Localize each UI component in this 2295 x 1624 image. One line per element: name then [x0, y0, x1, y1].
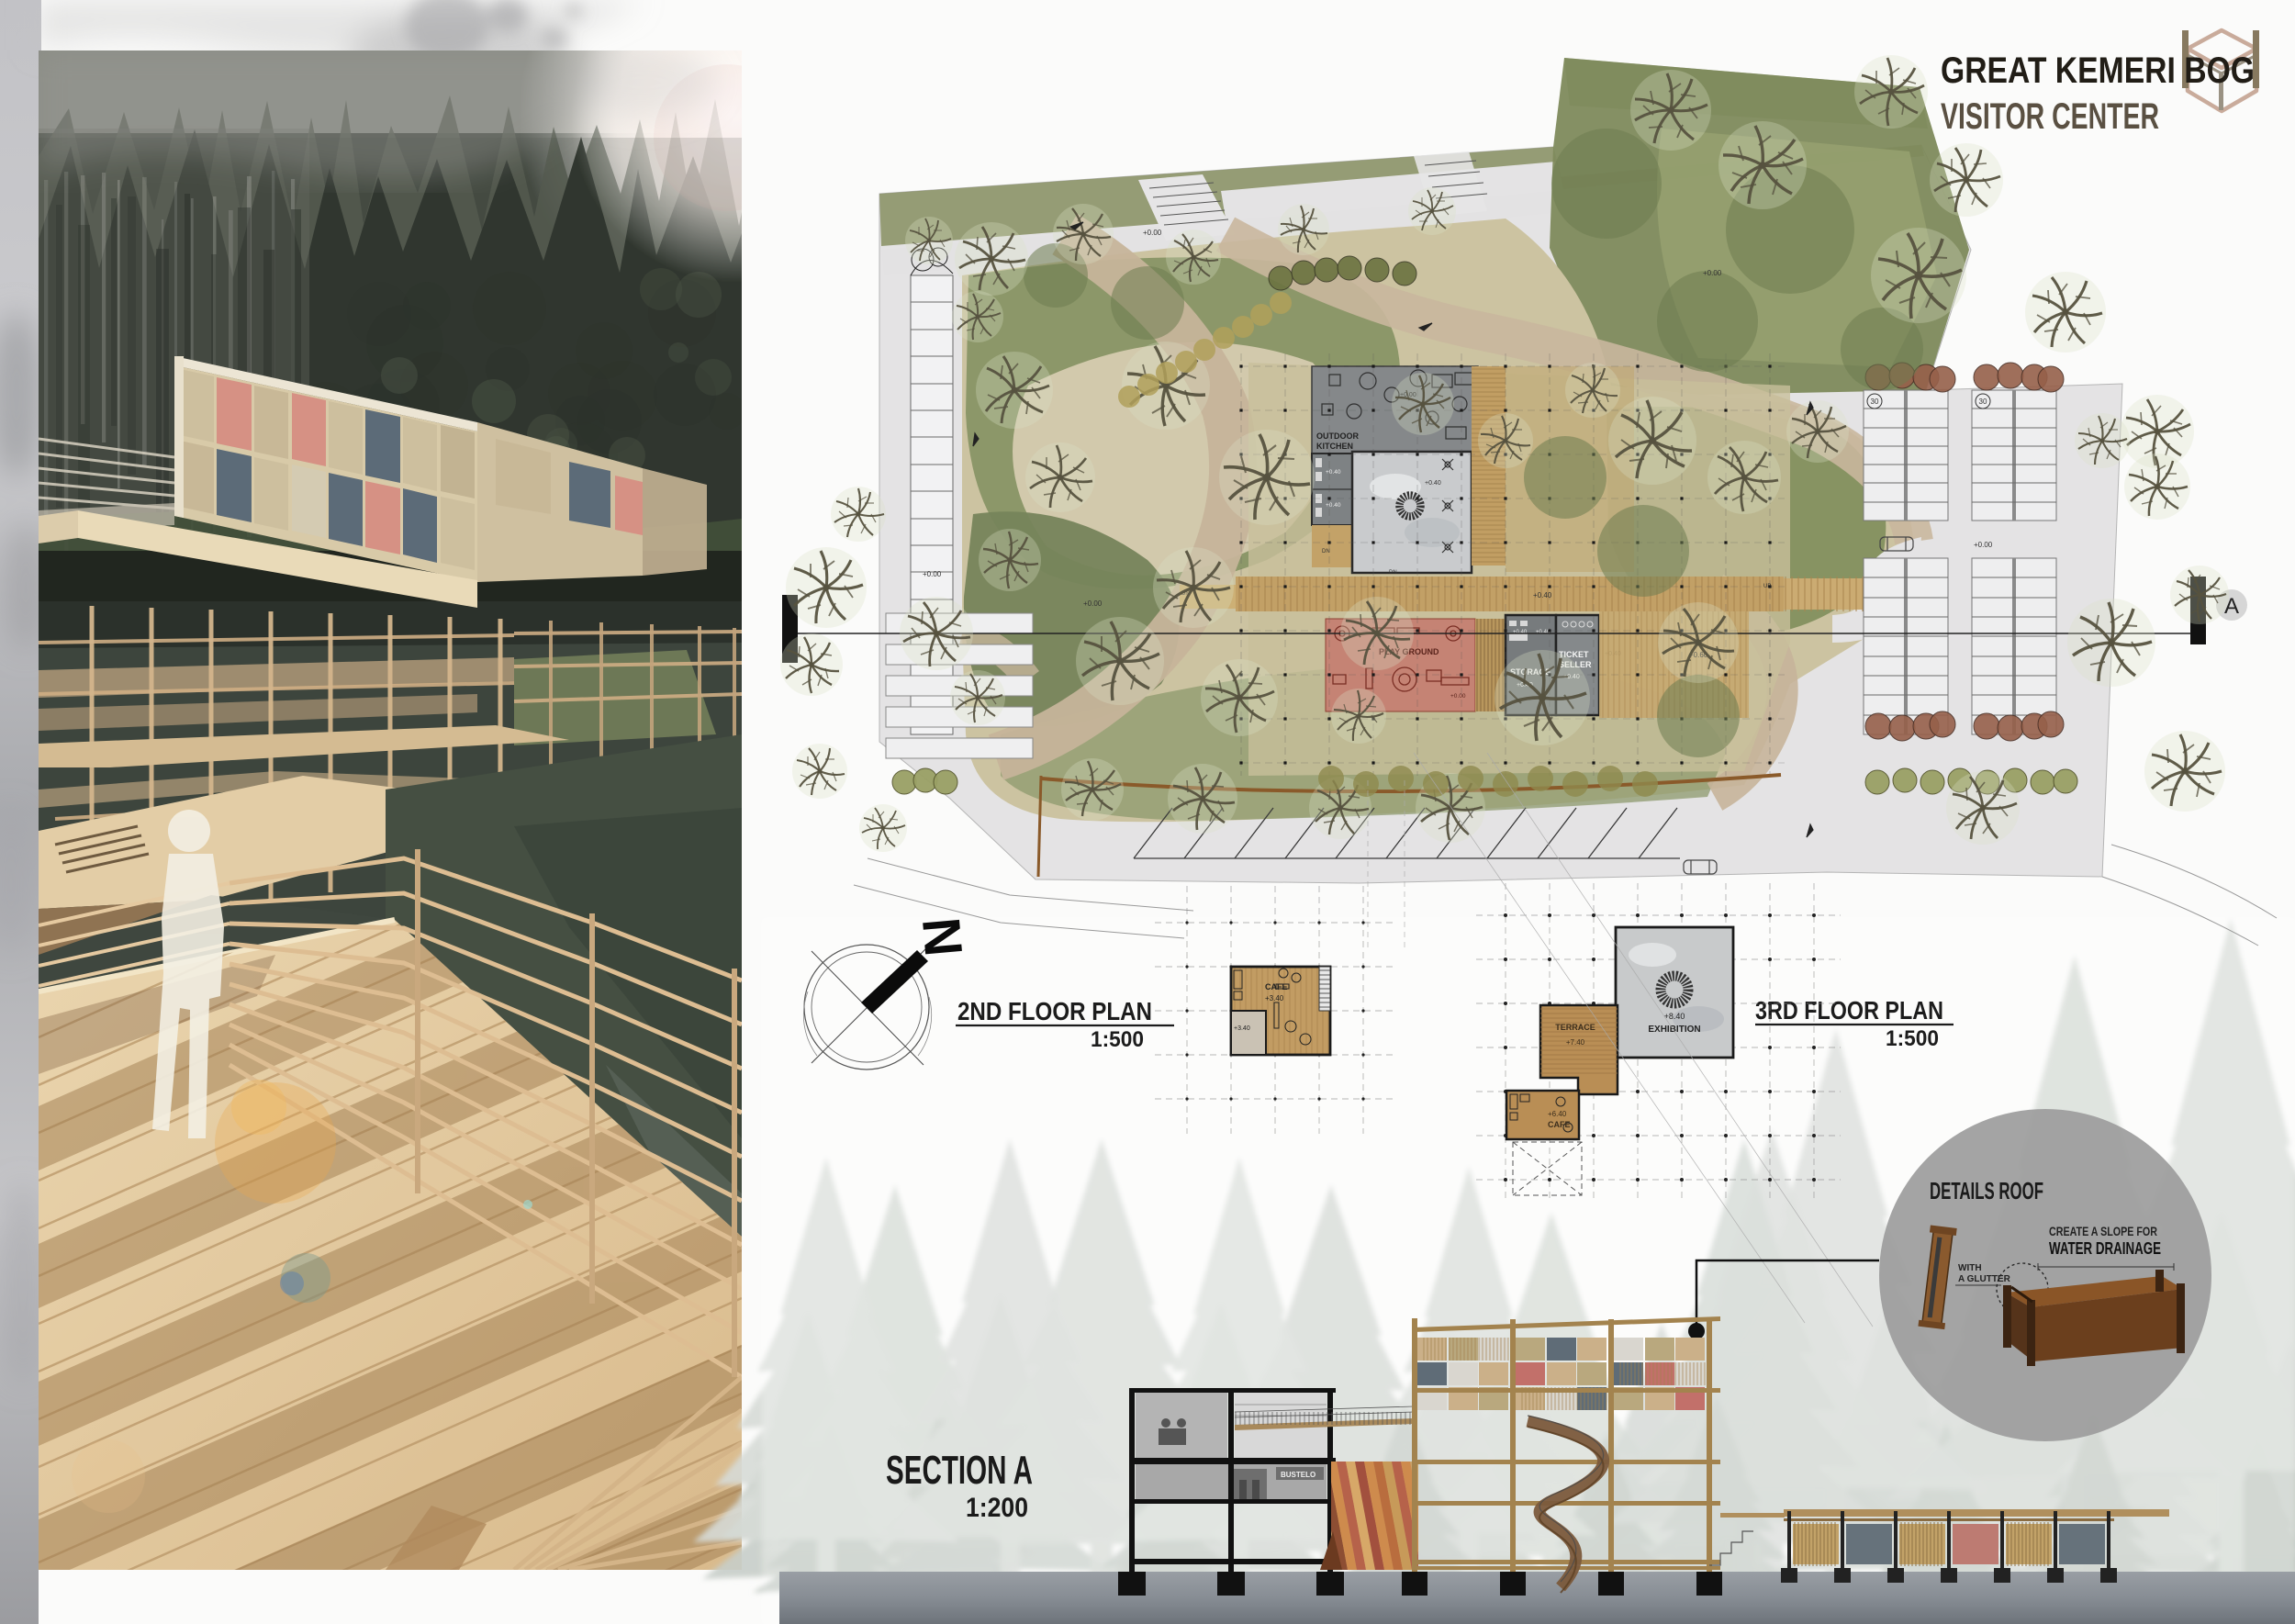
- svg-text:DN: DN: [1322, 549, 1330, 554]
- svg-text:+3.40: +3.40: [1234, 1025, 1250, 1032]
- svg-text:WITH: WITH: [1958, 1263, 1982, 1273]
- svg-text:BUSTELO: BUSTELO: [1281, 1471, 1315, 1479]
- svg-text:A GLUTTER: A GLUTTER: [1958, 1274, 2011, 1284]
- svg-text:3RD FLOOR PLAN: 3RD FLOOR PLAN: [1755, 996, 1943, 1025]
- svg-text:GREAT KEMERI BOG: GREAT KEMERI BOG: [1941, 50, 2255, 91]
- svg-text:1:200: 1:200: [966, 1493, 1028, 1523]
- svg-text:KITCHEN: KITCHEN: [1316, 442, 1353, 451]
- svg-text:N: N: [911, 915, 973, 958]
- svg-text:1:500: 1:500: [1091, 1027, 1144, 1052]
- svg-text:+0.00: +0.00: [1450, 693, 1466, 700]
- svg-text:WATER DRAINAGE: WATER DRAINAGE: [2049, 1239, 2161, 1258]
- svg-text:+0.00: +0.00: [1703, 269, 1722, 277]
- svg-text:CAFE: CAFE: [1265, 982, 1288, 991]
- svg-text:CAFE: CAFE: [1548, 1120, 1571, 1129]
- svg-text:VISITOR CENTER: VISITOR CENTER: [1941, 96, 2159, 137]
- svg-text:DN: DN: [1389, 570, 1397, 576]
- svg-text:SECTION A: SECTION A: [886, 1448, 1033, 1493]
- svg-text:+0.00: +0.00: [1143, 229, 1162, 237]
- svg-text:+7.40: +7.40: [1566, 1038, 1585, 1047]
- svg-text:30: 30: [1979, 398, 1987, 406]
- svg-text:CREATE A SLOPE FOR: CREATE A SLOPE FOR: [2049, 1224, 2157, 1238]
- svg-text:+0.40: +0.40: [1425, 480, 1441, 487]
- svg-text:2ND FLOOR PLAN: 2ND FLOOR PLAN: [957, 997, 1152, 1025]
- svg-text:+3.40: +3.40: [1265, 994, 1284, 1002]
- svg-text:+0.00: +0.00: [923, 570, 942, 578]
- svg-text:+6.40: +6.40: [1548, 1110, 1567, 1118]
- svg-text:OUTDOOR: OUTDOOR: [1316, 431, 1359, 441]
- svg-text:+0.00: +0.00: [1974, 541, 1993, 549]
- svg-text:+0.40: +0.40: [1326, 469, 1341, 476]
- svg-text:+0.00: +0.00: [1083, 599, 1103, 608]
- svg-text:1:500: 1:500: [1886, 1026, 1939, 1051]
- svg-text:EXHIBITION: EXHIBITION: [1648, 1025, 1700, 1035]
- svg-text:TERRACE: TERRACE: [1555, 1023, 1595, 1032]
- svg-text:30: 30: [1871, 398, 1879, 406]
- svg-text:+0.40: +0.40: [1326, 502, 1341, 509]
- svg-text:+0.40: +0.40: [1533, 591, 1552, 599]
- svg-text:+8.40: +8.40: [1664, 1012, 1685, 1021]
- svg-text:DETAILS ROOF: DETAILS ROOF: [1930, 1177, 2043, 1204]
